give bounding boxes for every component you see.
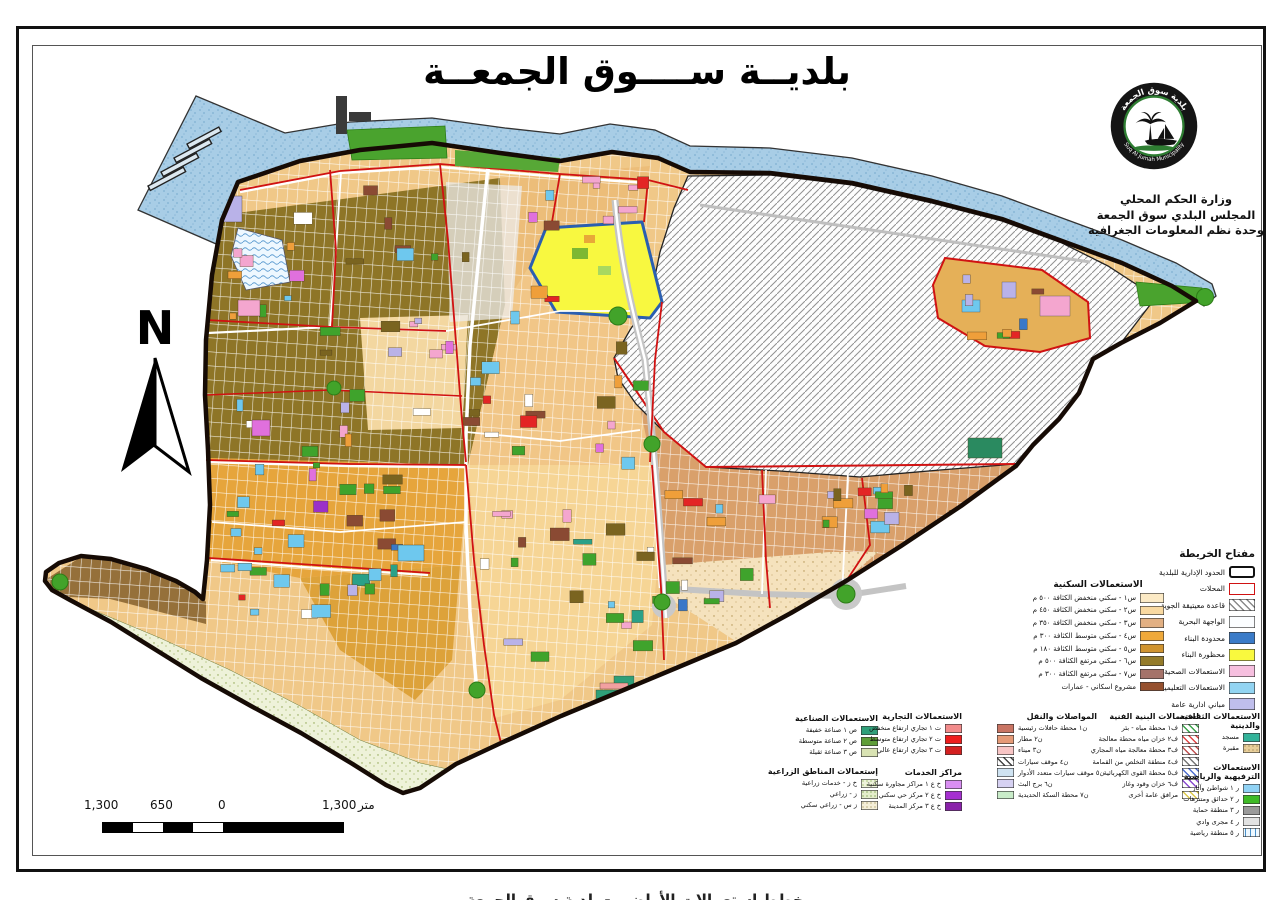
legend-item-label: خ ز - خدمات زراعية — [802, 779, 857, 787]
legend-item: س٧ - سكني مرتفع الكثافة ٣٠٠ م — [1032, 669, 1164, 679]
legend-item-label: س٢ - سكني منخفض الكثافة ٤٥٠ م — [1033, 606, 1136, 614]
legend-swatch — [1229, 649, 1255, 661]
legend-swatch — [861, 748, 878, 757]
legend-swatch — [945, 735, 962, 744]
legend-item: خ ع ١ مراكز مجاورة سكنية — [878, 780, 962, 789]
scale-unit: متر — [358, 798, 375, 812]
legend-swatch — [1140, 631, 1164, 641]
legend-item: محظورة البناء — [1150, 649, 1255, 661]
legend-item-label: الواجهة البحرية — [1178, 617, 1225, 626]
legend-item: ن٧ محطة السكة الحديدية — [997, 791, 1097, 800]
legend-swatch — [1243, 733, 1260, 742]
legend-item: س٥ - سكني متوسط الكثافة ١٨٠ م — [1032, 644, 1164, 654]
legend-item-label: ف٦ خزان وقود وغاز — [1122, 780, 1178, 788]
legend-swatch — [1229, 616, 1255, 628]
legend-swatch — [1229, 599, 1255, 611]
legend-swatch — [997, 724, 1014, 733]
legend-item: المحلات — [1150, 583, 1255, 595]
scale-label: 0 — [218, 798, 226, 812]
legend-item: الاستعمالات التعليمية — [1150, 682, 1255, 694]
legend-item-label: ز س - زراعي سكني — [801, 801, 857, 809]
legend-residential: الاستعمالات السكنيةس١ - سكني منخفض الكثا… — [1032, 580, 1164, 695]
legend-cultural: الاستعمالات الثقافية والدينيةمسجدمقبرة — [1178, 712, 1260, 755]
legend-item: ر ٢ حدائق ومتنزهات — [1178, 795, 1260, 804]
legend-item: الواجهة البحرية — [1150, 616, 1255, 628]
legend-item: ص ٣ صناعة ثقيلة — [758, 748, 878, 757]
legend-item: ن٦ برج البث — [997, 779, 1097, 788]
legend-item-label: محظورة البناء — [1181, 650, 1225, 659]
legend-item-label: ر ٤ مجرى وادي — [1196, 818, 1239, 826]
legend-service-centers: مراكز الخدماتخ ع ١ مراكز مجاورة سكنيةخ ع… — [878, 768, 962, 813]
legend-swatch — [1140, 669, 1164, 679]
legend-swatch — [1229, 682, 1255, 694]
legend-swatch — [1229, 566, 1255, 578]
legend-item: ن١ محطة حافلات رئيسية — [997, 724, 1097, 733]
legend-item-label: ف٥ محطة القوى الكهربائية — [1103, 769, 1178, 777]
legend-item-label: س٣ - سكني منخفض الكثافة ٣٥٠ م — [1033, 619, 1136, 627]
legend-title: الاستعمالات التجارية — [878, 712, 962, 721]
legend-item-label: ف١ محطة مياه - بئر — [1122, 724, 1178, 732]
legend-item: ت ٢ تجاري ارتفاع متوسط — [878, 735, 962, 744]
org-line: وحدة نظم المعلومات الجغرافية — [1078, 223, 1274, 239]
legend-swatch — [997, 735, 1014, 744]
legend-item-label: خ ع ٢ مركز حي سكني — [879, 791, 941, 799]
legend-item: قاعدة معيتيقة الجوية — [1150, 599, 1255, 611]
legend-item: ن٤ موقف سيارات — [997, 757, 1097, 766]
legend-industrial: الاستعمالات الصناعيةص ١ صناعة خفيفةص ٢ ص… — [758, 714, 878, 759]
legend-title: إستعمالات المناطق الزراعية — [758, 767, 878, 776]
legend-item-label: س٥ - سكني متوسط الكثافة ١٨٠ م — [1033, 645, 1136, 653]
legend-item: خ ز - خدمات زراعية — [758, 779, 878, 788]
legend-item-label: محدودة البناء — [1184, 634, 1225, 643]
legend-swatch — [1243, 817, 1260, 826]
legend-swatch — [1229, 632, 1255, 644]
legend-commercial: الاستعمالات التجاريةت ١ تجاري ارتفاع منخ… — [878, 712, 962, 757]
legend-item-label: س٦ - سكني مرتفع الكثافة ٥٠٠ م — [1038, 657, 1136, 665]
legend-item: مسجد — [1178, 733, 1260, 742]
legend-item: س٣ - سكني منخفض الكثافة ٣٥٠ م — [1032, 618, 1164, 628]
legend-agriculture: إستعمالات المناطق الزراعيةخ ز - خدمات زر… — [758, 767, 878, 812]
legend-item-label: مقبرة — [1223, 744, 1239, 752]
legend-swatch — [1140, 606, 1164, 616]
legend-item-label: ف٢ خزان مياه محطة معالجة — [1099, 735, 1178, 743]
legend-swatch — [1140, 656, 1164, 666]
legend-swatch — [997, 757, 1014, 766]
legend-item-label: مرافق عامة أخرى — [1128, 791, 1178, 799]
map-sheet: { "title": "بلديــة ســــوق الجمعــة", "… — [0, 0, 1274, 900]
legend-item-label: ت ١ تجاري ارتفاع منخفض — [869, 724, 941, 732]
legend-item-label: الاستعمالات التعليمية — [1161, 683, 1226, 692]
page-title: بلديــة ســــوق الجمعــة — [423, 50, 851, 93]
scale-bar: 1,300 650 0 1,300 متر — [40, 798, 370, 844]
legend-item-label: المحلات — [1200, 584, 1225, 593]
north-label: N — [136, 301, 175, 355]
legend-item-label: ن٦ برج البث — [1018, 780, 1053, 788]
legend-item: الاستعمالات الصحية — [1150, 665, 1255, 677]
legend-item: خ ع ٣ مركز المدينة — [878, 802, 962, 811]
legend-item-label: ر ١ شواطئ وآثار — [1192, 784, 1239, 792]
legend-title: الاستعمالات الصناعية — [758, 714, 878, 723]
legend-swatch — [1140, 593, 1164, 603]
legend-title: مفتاح الخريطة — [1150, 548, 1255, 560]
legend-item-label: ن١ محطة حافلات رئيسية — [1018, 724, 1087, 732]
organization-block: وزارة الحكم المحلي المجلس البلدي سوق الج… — [1078, 192, 1274, 239]
legend-item: س٦ - سكني مرتفع الكثافة ٥٠٠ م — [1032, 656, 1164, 666]
legend-swatch — [1229, 665, 1255, 677]
legend-swatch — [945, 802, 962, 811]
legend-item: الحدود الإدارية للبلدية — [1150, 566, 1255, 578]
legend-swatch — [945, 780, 962, 789]
legend-item-label: خ ع ١ مراكز مجاورة سكنية — [867, 780, 941, 788]
legend-transport: المواصلات والنقلن١ محطة حافلات رئيسيةن٢ … — [997, 712, 1097, 802]
legend-item-label: ف٤ منطقة التخلص من القمامة — [1092, 758, 1178, 766]
legend-item-label: الحدود الإدارية للبلدية — [1159, 568, 1225, 577]
legend-item-label: ت ٣ تجاري ارتفاع عالي — [877, 746, 941, 754]
legend-title: الاستعمالات الثقافية والدينية — [1178, 712, 1260, 730]
legend-item: س٢ - سكني منخفض الكثافة ٤٥٠ م — [1032, 606, 1164, 616]
legend-item: ن٣ ميناء — [997, 746, 1097, 755]
legend-item: مقبرة — [1178, 744, 1260, 753]
legend-item: مباني ادارية عامة — [1150, 698, 1255, 710]
bottom-caption: مخطط استعمالات الأراضي - بلدية سوق الجمع… — [380, 891, 900, 900]
legend-item-label: ن٧ محطة السكة الحديدية — [1018, 791, 1089, 799]
legend-item: ر ٥ منطقة رياضية — [1178, 828, 1260, 837]
legend-item: س٤ - سكني متوسط الكثافة ٣٠٠ م — [1032, 631, 1164, 641]
legend-item-label: س٤ - سكني متوسط الكثافة ٣٠٠ م — [1033, 632, 1136, 640]
legend-swatch — [1243, 795, 1260, 804]
legend-item-label: ت ٢ تجاري ارتفاع متوسط — [870, 735, 941, 743]
legend-swatch — [861, 790, 878, 799]
legend-item-label: ص ٢ صناعة متوسطة — [799, 737, 857, 745]
legend-swatch — [997, 791, 1014, 800]
legend-item: ن٥ موقف سيارات متعدد الأدوار — [997, 768, 1097, 777]
legend-item-label: ر ٢ حدائق ومتنزهات — [1183, 795, 1239, 803]
legend-item: ت ٣ تجاري ارتفاع عالي — [878, 746, 962, 755]
legend-title: الاستعمالات الترفيهية والرياضية — [1178, 763, 1260, 781]
legend-swatch — [945, 791, 962, 800]
legend-item-label: ر ٣ منطقة حماية — [1193, 806, 1239, 814]
legend-title: المواصلات والنقل — [997, 712, 1097, 721]
legend-swatch — [997, 768, 1014, 777]
legend-item-label: ن٥ موقف سيارات متعدد الأدوار — [1018, 769, 1104, 777]
scale-label: 1,300 — [322, 798, 356, 812]
legend-item-label: ص ٣ صناعة ثقيلة — [809, 748, 857, 756]
org-line: وزارة الحكم المحلي — [1078, 192, 1274, 208]
legend-item-label: خ ع ٣ مركز المدينة — [888, 802, 941, 810]
legend-item: ر ١ شواطئ وآثار — [1178, 784, 1260, 793]
legend-item: محدودة البناء — [1150, 632, 1255, 644]
legend-item: ز - زراعي — [758, 790, 878, 799]
legend-swatch — [1140, 618, 1164, 628]
legend-item-label: س٧ - سكني مرتفع الكثافة ٣٠٠ م — [1038, 670, 1136, 678]
legend-item-label: ن٤ موقف سيارات — [1018, 758, 1068, 766]
legend-swatch — [1140, 644, 1164, 654]
legend-title: الاستعمالات السكنية — [1032, 580, 1164, 590]
legend-item: ر ٤ مجرى وادي — [1178, 817, 1260, 826]
scale-label: 1,300 — [84, 798, 118, 812]
legend-item-label: ص ١ صناعة خفيفة — [806, 726, 857, 734]
legend-swatch — [1243, 806, 1260, 815]
legend-swatch — [1140, 682, 1164, 692]
legend-swatch — [1229, 698, 1255, 710]
org-line: المجلس البلدي سوق الجمعة — [1078, 208, 1274, 224]
north-arrow: N — [95, 300, 215, 485]
legend-item-label: س١ - سكني منخفض الكثافة ٥٠٠ م — [1033, 594, 1136, 602]
legend-swatch — [1229, 583, 1255, 595]
scale-label: 650 — [150, 798, 173, 812]
legend-map-key: مفتاح الخريطةالحدود الإدارية للبلديةالمح… — [1150, 548, 1255, 715]
legend-item-label: مباني ادارية عامة — [1171, 700, 1225, 709]
legend-item-label: الاستعمالات الصحية — [1164, 667, 1225, 676]
legend-swatch — [997, 779, 1014, 788]
legend-item-label: ر ٥ منطقة رياضية — [1190, 829, 1239, 837]
legend-swatch — [1243, 784, 1260, 793]
legend-swatch — [945, 746, 962, 755]
legend-recreation: الاستعمالات الترفيهية والرياضيةر ١ شواطئ… — [1178, 763, 1260, 839]
municipality-logo: بلدية سوق الجمعة Suq Al Jumah Municipali… — [1108, 80, 1200, 172]
legend-item-label: مسجد — [1222, 733, 1239, 741]
legend-swatch — [945, 724, 962, 733]
legend-swatch — [1243, 744, 1260, 753]
legend-item-label: مشروع اسكاني - عمارات — [1062, 683, 1136, 691]
legend-item: س١ - سكني منخفض الكثافة ٥٠٠ م — [1032, 593, 1164, 603]
legend-item-label: ف٣ محطة معالجة مياه المجاري — [1091, 746, 1178, 754]
legend-item-label: قاعدة معيتيقة الجوية — [1161, 601, 1225, 610]
legend-item: ن٢ مطار — [997, 735, 1097, 744]
legend-swatch — [997, 746, 1014, 755]
legend-item-label: ن٣ ميناء — [1018, 746, 1041, 754]
legend-item: ر ٣ منطقة حماية — [1178, 806, 1260, 815]
legend-item: خ ع ٢ مركز حي سكني — [878, 791, 962, 800]
legend-swatch — [861, 801, 878, 810]
legend-item: ص ١ صناعة خفيفة — [758, 726, 878, 735]
legend-item: ت ١ تجاري ارتفاع منخفض — [878, 724, 962, 733]
legend-item: مشروع اسكاني - عمارات — [1032, 682, 1164, 692]
legend-item: ص ٢ صناعة متوسطة — [758, 737, 878, 746]
scale-bar-graphic — [102, 822, 344, 833]
legend-item-label: ز - زراعي — [830, 790, 857, 798]
legend-swatch — [1243, 828, 1260, 837]
legend-item: ز س - زراعي سكني — [758, 801, 878, 810]
legend-item-label: ن٢ مطار — [1018, 735, 1043, 743]
legend-title: مراكز الخدمات — [878, 768, 962, 777]
